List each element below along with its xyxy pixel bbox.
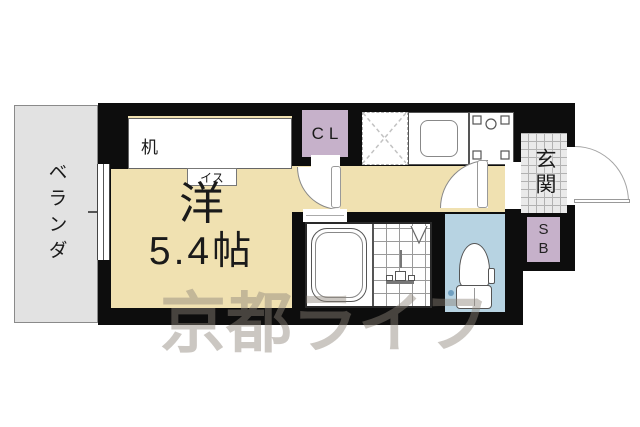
kitchen-counter bbox=[408, 112, 469, 165]
fridge-space-x-icon bbox=[363, 113, 406, 163]
balcony-window-tick bbox=[88, 211, 97, 213]
desk-label: 机 bbox=[141, 133, 158, 158]
balcony-window-center-line bbox=[103, 164, 104, 260]
mirror-v-icon bbox=[410, 225, 428, 245]
hall-doorway-gap bbox=[505, 162, 521, 209]
front-door-opening bbox=[567, 147, 575, 205]
balcony-label: ベランダ bbox=[43, 162, 70, 266]
kitchen-sink bbox=[420, 120, 458, 157]
washer-pan bbox=[469, 112, 514, 165]
entrance-label: 玄関 bbox=[529, 148, 559, 198]
faucet-spout bbox=[400, 250, 402, 268]
front-door-swing bbox=[575, 146, 629, 202]
bathroom-door-line bbox=[306, 215, 344, 216]
balcony: ベランダ bbox=[14, 105, 98, 323]
entrance: 玄関 bbox=[521, 133, 567, 213]
room-name: 洋 bbox=[111, 178, 292, 230]
room-size: 5.4帖 bbox=[111, 230, 292, 275]
floorplan-canvas: ベランダ 机 イス 洋 5.4帖 CL bbox=[0, 0, 640, 427]
room-label: 洋 5.4帖 bbox=[111, 178, 292, 275]
desk: 机 bbox=[128, 118, 292, 169]
watermark: 京都ライフ bbox=[160, 270, 490, 366]
closet-door-leaf bbox=[331, 166, 341, 208]
fridge-space bbox=[362, 112, 408, 165]
front-door-leaf bbox=[574, 199, 630, 203]
closet-label: CL bbox=[312, 124, 344, 144]
hall-door-leaf bbox=[477, 160, 488, 208]
pillar-top-left bbox=[111, 116, 128, 169]
shoe-box-label: SB bbox=[535, 221, 552, 259]
washer-pan-icon bbox=[470, 113, 513, 163]
shoe-box: SB bbox=[527, 217, 560, 262]
bathroom-door-gap bbox=[303, 209, 347, 222]
closet: CL bbox=[302, 110, 348, 157]
